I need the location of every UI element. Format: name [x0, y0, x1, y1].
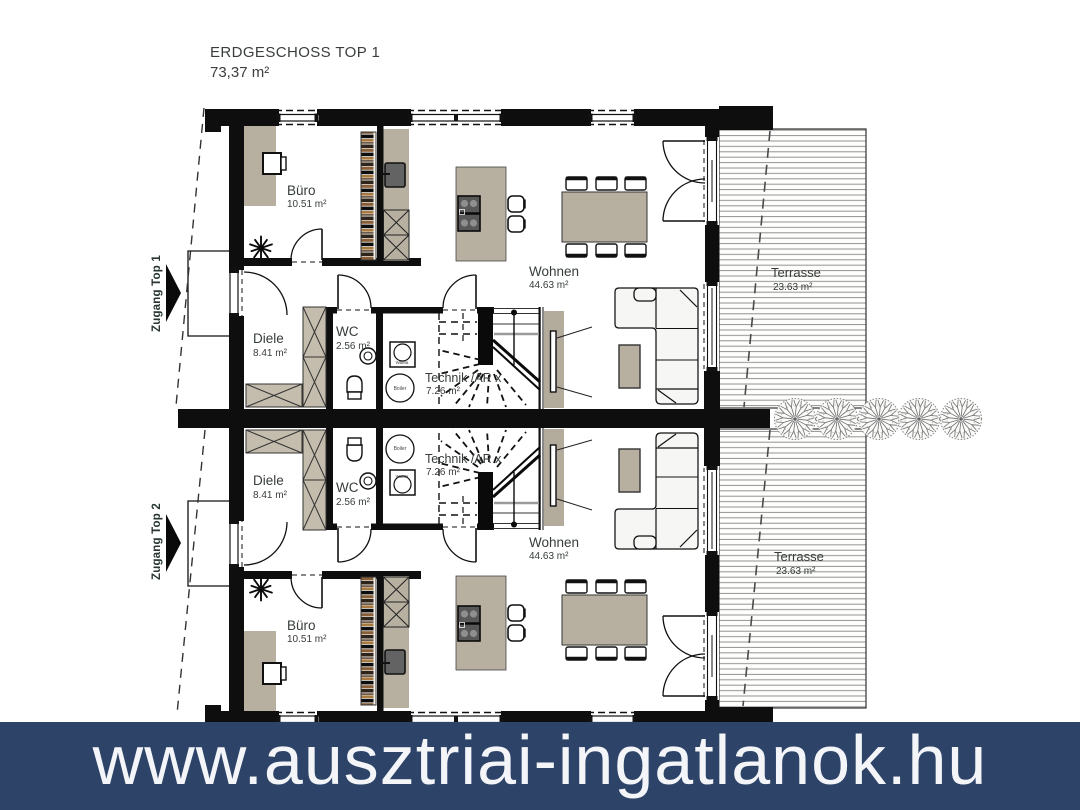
svg-text:8.41 m²: 8.41 m² — [253, 348, 288, 359]
svg-text:10.51 m²: 10.51 m² — [287, 199, 327, 210]
svg-text:7.26 m²: 7.26 m² — [426, 386, 461, 397]
svg-text:Diele: Diele — [253, 473, 284, 488]
svg-text:WC: WC — [336, 480, 359, 495]
svg-text:WC: WC — [336, 324, 359, 339]
svg-text:44.63 m²: 44.63 m² — [529, 280, 569, 291]
svg-text:Technik /AR x: Technik /AR x — [425, 371, 502, 385]
svg-text:Wohnen: Wohnen — [529, 535, 579, 550]
svg-text:44.63 m²: 44.63 m² — [529, 551, 569, 562]
svg-text:Diele: Diele — [253, 331, 284, 346]
svg-text:Zugang Top 1: Zugang Top 1 — [151, 255, 163, 332]
svg-text:Technik /AR x: Technik /AR x — [425, 452, 502, 466]
svg-text:WaMa: WaMa — [396, 360, 409, 365]
svg-text:2.56 m²: 2.56 m² — [336, 341, 371, 352]
svg-text:Wohnen: Wohnen — [529, 264, 579, 279]
svg-text:Zugang Top 2: Zugang Top 2 — [151, 503, 163, 580]
svg-text:Terrasse: Terrasse — [774, 549, 824, 564]
svg-text:Boiler: Boiler — [394, 446, 407, 452]
svg-text:Boiler: Boiler — [394, 386, 407, 392]
svg-text:8.41 m²: 8.41 m² — [253, 490, 288, 501]
svg-text:Büro: Büro — [287, 183, 316, 198]
svg-text:7.26 m²: 7.26 m² — [426, 467, 461, 478]
svg-text:ERDGESCHOSS TOP 1: ERDGESCHOSS TOP 1 — [210, 44, 380, 61]
svg-text:10.51 m²: 10.51 m² — [287, 634, 327, 645]
svg-text:Terrasse: Terrasse — [771, 265, 821, 280]
svg-text:2.56 m²: 2.56 m² — [336, 497, 371, 508]
svg-text:WaMa: WaMa — [396, 474, 409, 479]
svg-text:Büro: Büro — [287, 618, 316, 633]
svg-text:23.63 m²: 23.63 m² — [773, 282, 813, 293]
svg-text:23.63 m²: 23.63 m² — [776, 566, 816, 577]
svg-text:73,37 m²: 73,37 m² — [210, 64, 269, 81]
